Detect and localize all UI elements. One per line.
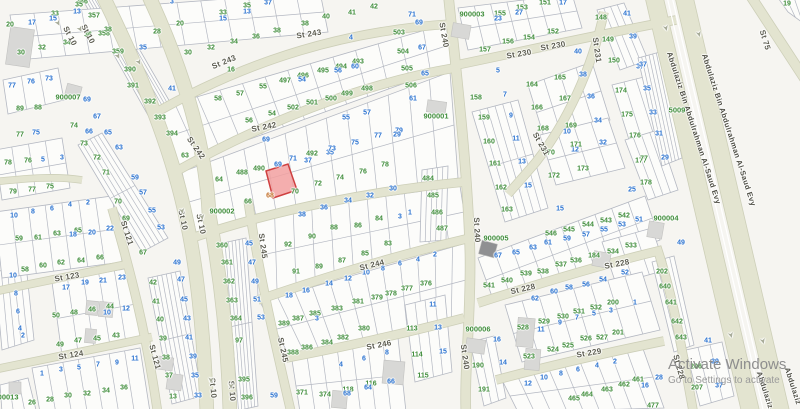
street-label: St 240: [472, 217, 482, 243]
road-direction-arrow-icon: ➤: [758, 337, 768, 346]
parcel-label: 25: [628, 187, 636, 194]
parcel-label: 523: [523, 354, 535, 361]
parcel-label: 49: [677, 240, 685, 247]
parcel-label: 30: [17, 50, 25, 57]
parcel-label: 390: [124, 67, 136, 74]
parcel-label: 61: [34, 235, 42, 242]
parcel-label: 536: [570, 258, 582, 265]
parcel-label: 45: [93, 336, 101, 343]
parcel-label: 60: [550, 289, 558, 296]
parcel-label: 115: [417, 373, 428, 380]
parcel-label: 35: [75, 2, 83, 9]
parcel-label: 26: [28, 400, 36, 407]
parcel-label: 190: [472, 363, 484, 370]
parcel-label: 30: [64, 393, 72, 400]
parcel-label: 89: [315, 264, 323, 271]
parcel-label: 167: [559, 96, 571, 103]
parcel-label: 78: [4, 160, 12, 167]
parcel-label: 172: [548, 173, 560, 180]
map-canvas[interactable]: 3563573583593903913923933943541777673898…: [0, 0, 800, 409]
parcel-label: 47: [74, 338, 82, 345]
parcel-label: 3: [315, 316, 319, 323]
parcel-label: 4: [349, 35, 353, 42]
parcel-label: 77: [16, 132, 24, 139]
parcel-label: 50: [52, 313, 60, 320]
parcel-label: 53: [257, 315, 265, 322]
parcel-label: 54: [298, 77, 306, 84]
parcel-label: 39: [159, 336, 167, 343]
parcel-label: 72: [93, 155, 101, 162]
parcel-label: 162: [495, 185, 507, 192]
parcel-label: 2: [433, 252, 437, 259]
parcel-label: 499: [341, 91, 353, 98]
parcel-label: 69: [274, 162, 282, 169]
parcel-label: 9: [509, 113, 513, 120]
parcel-label: 364: [230, 316, 242, 323]
parcel-label: 4: [595, 363, 599, 370]
parcel-label: 8: [14, 291, 18, 298]
parcel-label: 164: [526, 82, 538, 89]
parcel-label: 396: [241, 395, 253, 402]
parcel-label: 55: [259, 84, 267, 91]
parcel-label: 58: [565, 285, 573, 292]
parcel-label: 35: [139, 45, 147, 52]
parcel-label: 21: [99, 278, 107, 285]
parcel-label: 3: [398, 214, 402, 221]
parcel-label: 9: [115, 360, 119, 367]
parcel-label: 6: [362, 356, 366, 363]
parcel-label: 38: [298, 212, 306, 219]
parcel-label: 35: [643, 86, 651, 93]
parcel-label: 55: [600, 227, 608, 234]
parcel-label: 40: [322, 14, 330, 21]
parcel-label: 87: [338, 258, 346, 265]
parcel-label: 6: [50, 206, 54, 213]
parcel-label: 525: [562, 343, 574, 350]
parcel-label: 45: [180, 297, 188, 304]
parcel-label: 72: [314, 181, 322, 188]
parcel-label: 393: [154, 115, 166, 122]
parcel-label: 35: [243, 3, 251, 10]
street-label: St 228: [510, 282, 537, 296]
parcel-label: 77: [8, 83, 16, 90]
parcel-label: 67: [139, 250, 147, 257]
block-label: 900003: [459, 10, 484, 19]
parcel-label: 49: [173, 260, 181, 267]
parcel-label: 48: [70, 310, 78, 317]
parcel-label: 362: [223, 279, 235, 286]
parcel-label: 1: [408, 210, 412, 217]
parcel-label: 76: [359, 169, 367, 176]
parcel-label: 37: [264, 0, 272, 7]
parcel-label: 376: [420, 281, 432, 288]
parcel-label: 55: [148, 208, 156, 215]
parcel-label: 36: [587, 94, 595, 101]
parcel-label: 361: [221, 260, 233, 267]
parcel-label: 57: [582, 232, 590, 239]
parcel-label: 68: [343, 391, 351, 398]
parcel-label: 76: [24, 158, 32, 165]
parcel-label: 2: [613, 359, 617, 366]
parcel-label: 91: [292, 269, 300, 276]
parcel-label: 9: [558, 320, 562, 327]
parcel-label: 97: [235, 338, 243, 345]
parcel-label: 53: [157, 225, 165, 232]
parcel-label: 5: [41, 157, 45, 164]
parcel-label: 497: [279, 78, 291, 85]
parcel-label: 34: [344, 198, 352, 205]
parcel-label: 11: [131, 356, 138, 363]
parcel-label: 41: [704, 338, 712, 345]
parcel-label: 503: [393, 30, 405, 37]
street-label: St 123: [54, 270, 81, 283]
parcel-label: 546: [545, 231, 557, 238]
parcel-label: 46: [88, 307, 96, 314]
parcel-label: 63: [115, 145, 123, 152]
parcel-label: 4: [416, 257, 420, 264]
parcel-label: 57: [363, 110, 371, 117]
parcel-label: 41: [348, 10, 356, 17]
parcel-label: 544: [582, 222, 594, 229]
parcel-label: 51: [253, 297, 261, 304]
parcel-label: 381: [352, 299, 364, 306]
parcel-label: 191: [478, 387, 490, 394]
parcel-label: 13: [169, 394, 177, 401]
street-label: St 124: [58, 349, 84, 362]
parcel-label: 4: [18, 326, 22, 333]
parcel-label: 492: [306, 151, 318, 158]
block-label: 900004: [653, 214, 678, 223]
parcel-label: 357: [88, 13, 100, 20]
parcel-label: 49: [251, 279, 259, 286]
parcel-label: 176: [629, 133, 641, 140]
parcel-label: 14: [499, 360, 507, 367]
road-direction-arrow-icon: ➤: [694, 30, 704, 39]
parcel-label: 17: [62, 285, 70, 292]
parcel-label: 7: [503, 92, 507, 99]
parcel-label: 47: [177, 277, 185, 284]
street-label: St 245: [257, 233, 269, 259]
parcel-label: 498: [361, 86, 373, 93]
parcel-label: 8: [385, 350, 389, 357]
block-label: 900002: [209, 207, 234, 216]
parcel-label: 36: [120, 385, 128, 392]
parcel-label: 55: [342, 115, 350, 122]
parcel-label: 166: [531, 105, 543, 112]
parcel-label: 377: [401, 286, 413, 293]
parcel-label: 1: [633, 300, 637, 307]
parcel-label: 1: [40, 371, 44, 378]
parcel-label: 85: [361, 251, 369, 258]
parcel-label: 501: [306, 100, 318, 107]
parcel-label: 66: [85, 129, 93, 136]
parcel-label: 538: [537, 269, 549, 276]
parcel-label: 464: [581, 392, 593, 399]
parcel-label: 3: [609, 308, 613, 315]
parcel-label: 75: [46, 184, 54, 191]
parcel-label: 42: [370, 4, 378, 11]
block-label: 5009: [669, 106, 686, 115]
parcel-label: 371: [296, 390, 308, 397]
parcel-label: 92: [284, 242, 292, 249]
parcel-label: 75: [351, 140, 359, 147]
parcel-label: 15: [556, 206, 564, 213]
parcel-label: 61: [544, 240, 552, 247]
parcel-label: 62: [57, 260, 65, 267]
parcel-label: 17: [28, 20, 36, 27]
parcel-label: 33: [194, 393, 202, 400]
parcel-label: 465: [568, 396, 580, 403]
parcel-label: 43: [183, 316, 191, 323]
parcel-label: 10: [540, 375, 548, 382]
parcel-label: 152: [547, 29, 559, 36]
parcel-label: 500: [325, 96, 337, 103]
parcel-label: 36: [252, 34, 260, 41]
parcel-label: 32: [207, 45, 215, 52]
parcel-label: 533: [625, 243, 637, 250]
parcel-label: 77: [374, 133, 382, 140]
parcel-label: 484: [422, 176, 434, 183]
parcel-label: 71: [408, 12, 416, 19]
parcel-label: 389: [278, 321, 290, 328]
parcel-label: 178: [640, 180, 652, 187]
parcel-label: 38: [162, 355, 170, 362]
parcel-label: 41: [168, 86, 176, 93]
street-label: St 240: [459, 344, 471, 370]
parcel-label: 28: [153, 29, 161, 36]
parcel-label: 174: [615, 88, 627, 95]
parcel-label: 528: [517, 325, 529, 332]
parcel-label: 56: [245, 118, 253, 125]
street-label: St 243: [296, 28, 322, 41]
parcel-label: 4: [339, 362, 343, 369]
parcel-label: 32: [38, 45, 46, 52]
parcel-label: 51: [635, 217, 643, 224]
parcel-label: 642: [671, 319, 683, 326]
parcel-label: 37: [165, 373, 173, 380]
parcel-label: 539: [520, 271, 532, 278]
street-label: St 229: [576, 346, 603, 359]
street-label: St 121: [147, 344, 162, 371]
parcel-label: 74: [70, 123, 78, 130]
parcel-label: 69: [415, 20, 423, 27]
parcel-label: 57: [236, 91, 244, 98]
parcel-label: 643: [675, 335, 687, 342]
parcel-label: 529: [538, 319, 550, 326]
parcel-label: 3: [60, 155, 64, 162]
parcel-label: 526: [580, 336, 592, 343]
parcel-label: 43: [112, 333, 120, 340]
parcel-label: 8: [31, 209, 35, 216]
parcel-label: 202: [656, 269, 668, 276]
parcel-label: 201: [612, 330, 624, 337]
parcel-label: 63: [529, 245, 537, 252]
parcel-label: 477: [647, 403, 659, 409]
street-label: St 240: [437, 22, 450, 49]
parcel-label: 18: [285, 293, 293, 300]
parcel-label: 30: [389, 186, 397, 193]
parcel-label: 35: [191, 373, 199, 380]
parcel-label: 641: [665, 300, 677, 307]
parcel-label: 18: [69, 232, 77, 239]
parcel-label: 462: [618, 382, 630, 389]
parcel-label: 58: [21, 267, 29, 274]
parcel-label: 28: [655, 375, 663, 382]
parcel-label: 4: [68, 202, 72, 209]
parcel-label: 45: [245, 241, 253, 248]
parcel-label: 531: [573, 309, 585, 316]
parcel-label: 77: [28, 187, 36, 194]
parcel-label: 67: [418, 45, 426, 52]
block-label: 900013: [0, 393, 19, 402]
parcel-label: 488: [236, 170, 248, 177]
parcel-label: 37: [304, 158, 312, 165]
street-label: St 242: [251, 120, 278, 134]
parcel-label: 13: [243, 9, 251, 16]
parcel-label: 39: [189, 354, 197, 361]
parcel-label: 10: [563, 129, 571, 136]
parcel-label: 159: [478, 115, 490, 122]
road-direction-arrow-icon: ➤: [726, 331, 736, 340]
parcel-label: 64: [215, 177, 223, 184]
parcel-label: 37: [639, 62, 647, 69]
block-label: 900005: [483, 234, 508, 243]
parcel-label: 3: [170, 0, 174, 6]
parcel-label: 27: [515, 10, 523, 17]
parcel-label: 84: [375, 216, 383, 223]
parcel-label: 19: [81, 280, 89, 287]
parcel-label: 157: [479, 47, 491, 54]
parcel-label: 148: [595, 15, 607, 22]
parcel-label: 57: [139, 190, 147, 197]
parcel-label: 20: [6, 22, 14, 29]
parcel-label: 83: [384, 241, 392, 248]
parcel-label: 7: [96, 362, 100, 369]
parcel-label: 76: [27, 79, 35, 86]
parcel-label: 149: [602, 37, 614, 44]
parcel-label: 28: [46, 397, 54, 404]
parcel-label: 10: [9, 273, 17, 280]
parcel-label: 20: [176, 21, 184, 28]
parcel-label: 59: [270, 393, 278, 400]
parcel-label: 8: [559, 371, 563, 378]
parcel-label: 15: [439, 349, 447, 356]
parcel-label: 113: [406, 326, 417, 333]
parcel-label: 12: [122, 306, 130, 313]
parcel-label: 383: [331, 306, 343, 313]
street-label: St 121: [119, 220, 135, 247]
parcel-label: 59: [131, 175, 139, 182]
parcel-label: 88: [330, 225, 338, 232]
parcel-label: 374: [319, 392, 331, 399]
parcel-label: 36: [320, 205, 328, 212]
parcel-label: 64: [364, 385, 372, 392]
parcel-label: 41: [623, 11, 631, 18]
parcel-label: 90: [308, 234, 316, 241]
road-direction-arrow-icon: ➤: [206, 376, 215, 383]
parcel-label: 38: [273, 28, 281, 35]
parcel-label: 89: [16, 106, 24, 113]
parcel-label: 541: [483, 283, 495, 290]
parcel-label: 524: [547, 347, 559, 354]
parcel-label: 184: [588, 253, 600, 260]
parcel-label: 63: [53, 231, 61, 238]
parcel-label: 60: [351, 64, 359, 71]
parcel-label: 384: [321, 340, 333, 347]
parcel-label: 16: [302, 288, 310, 295]
road-direction-arrow-icon: ➤: [177, 207, 187, 215]
parcel-label: 506: [405, 83, 417, 90]
parcel-label: 34: [594, 118, 602, 125]
parcel-label: 505: [401, 66, 413, 73]
parcel-label: 114: [411, 352, 422, 359]
parcel-label: 34: [230, 39, 238, 46]
parcel-label: 485: [427, 193, 439, 200]
parcel-label: 73: [45, 76, 53, 83]
parcel-label: 545: [563, 227, 575, 234]
parcel-label: 386: [301, 345, 313, 352]
parcel-label: 11: [429, 302, 436, 309]
parcel-label: 640: [659, 284, 671, 291]
parcel-label: 495: [317, 68, 329, 75]
parcel-label: 34: [102, 388, 110, 395]
parcel-label: 17: [559, 0, 567, 7]
parcel-label: 11: [537, 327, 544, 334]
parcel-label: 63: [181, 153, 189, 160]
parcel-label: 88: [34, 105, 42, 112]
parcel-label: 23: [494, 16, 502, 23]
parcel-label: 39: [629, 34, 637, 41]
parcel-label: 392: [144, 99, 156, 106]
parcel-label: 56: [582, 282, 590, 289]
parcel-label: 163: [501, 207, 513, 214]
parcel-label: 65: [512, 250, 520, 257]
parcel-label: 71: [289, 156, 297, 163]
parcel-label: 156: [502, 39, 514, 46]
parcel-label: 5: [77, 365, 81, 372]
parcel-label: 16: [227, 67, 235, 74]
parcel-label: 175: [621, 112, 633, 119]
street-label: St 75: [758, 29, 773, 51]
parcel-label: 150: [608, 58, 620, 65]
parcel-label: 73: [328, 146, 336, 153]
parcel-label: 532: [590, 305, 602, 312]
parcel-label: 2: [21, 333, 25, 340]
parcel-label: 53: [618, 222, 626, 229]
watermark-line2: Go to Settings to activate: [668, 375, 800, 388]
parcel-label: 38: [301, 21, 309, 28]
street-label: St 230: [540, 39, 567, 52]
parcel-label: 395: [238, 377, 250, 384]
parcel-label: 391: [127, 83, 139, 90]
watermark-line1: Activate Windows: [668, 356, 800, 375]
parcel-label: 79: [9, 189, 17, 196]
parcel-label: 74: [336, 175, 344, 182]
parcel-label: 151: [539, 0, 551, 7]
parcel-label: 173: [577, 166, 589, 173]
parcel-label: 31: [655, 131, 663, 138]
parcel-label: 2: [86, 200, 90, 207]
parcel-label: 13: [518, 159, 526, 166]
parcel-label: 543: [600, 218, 612, 225]
parcel-label: 42: [149, 280, 157, 287]
parcel-label: 13: [434, 325, 442, 332]
parcel-label: 38: [104, 27, 112, 34]
parcel-label: 6: [398, 261, 402, 268]
parcel-label: 77: [640, 156, 648, 163]
parcel-label: 12: [344, 276, 352, 283]
parcel-label: 378: [385, 291, 397, 298]
